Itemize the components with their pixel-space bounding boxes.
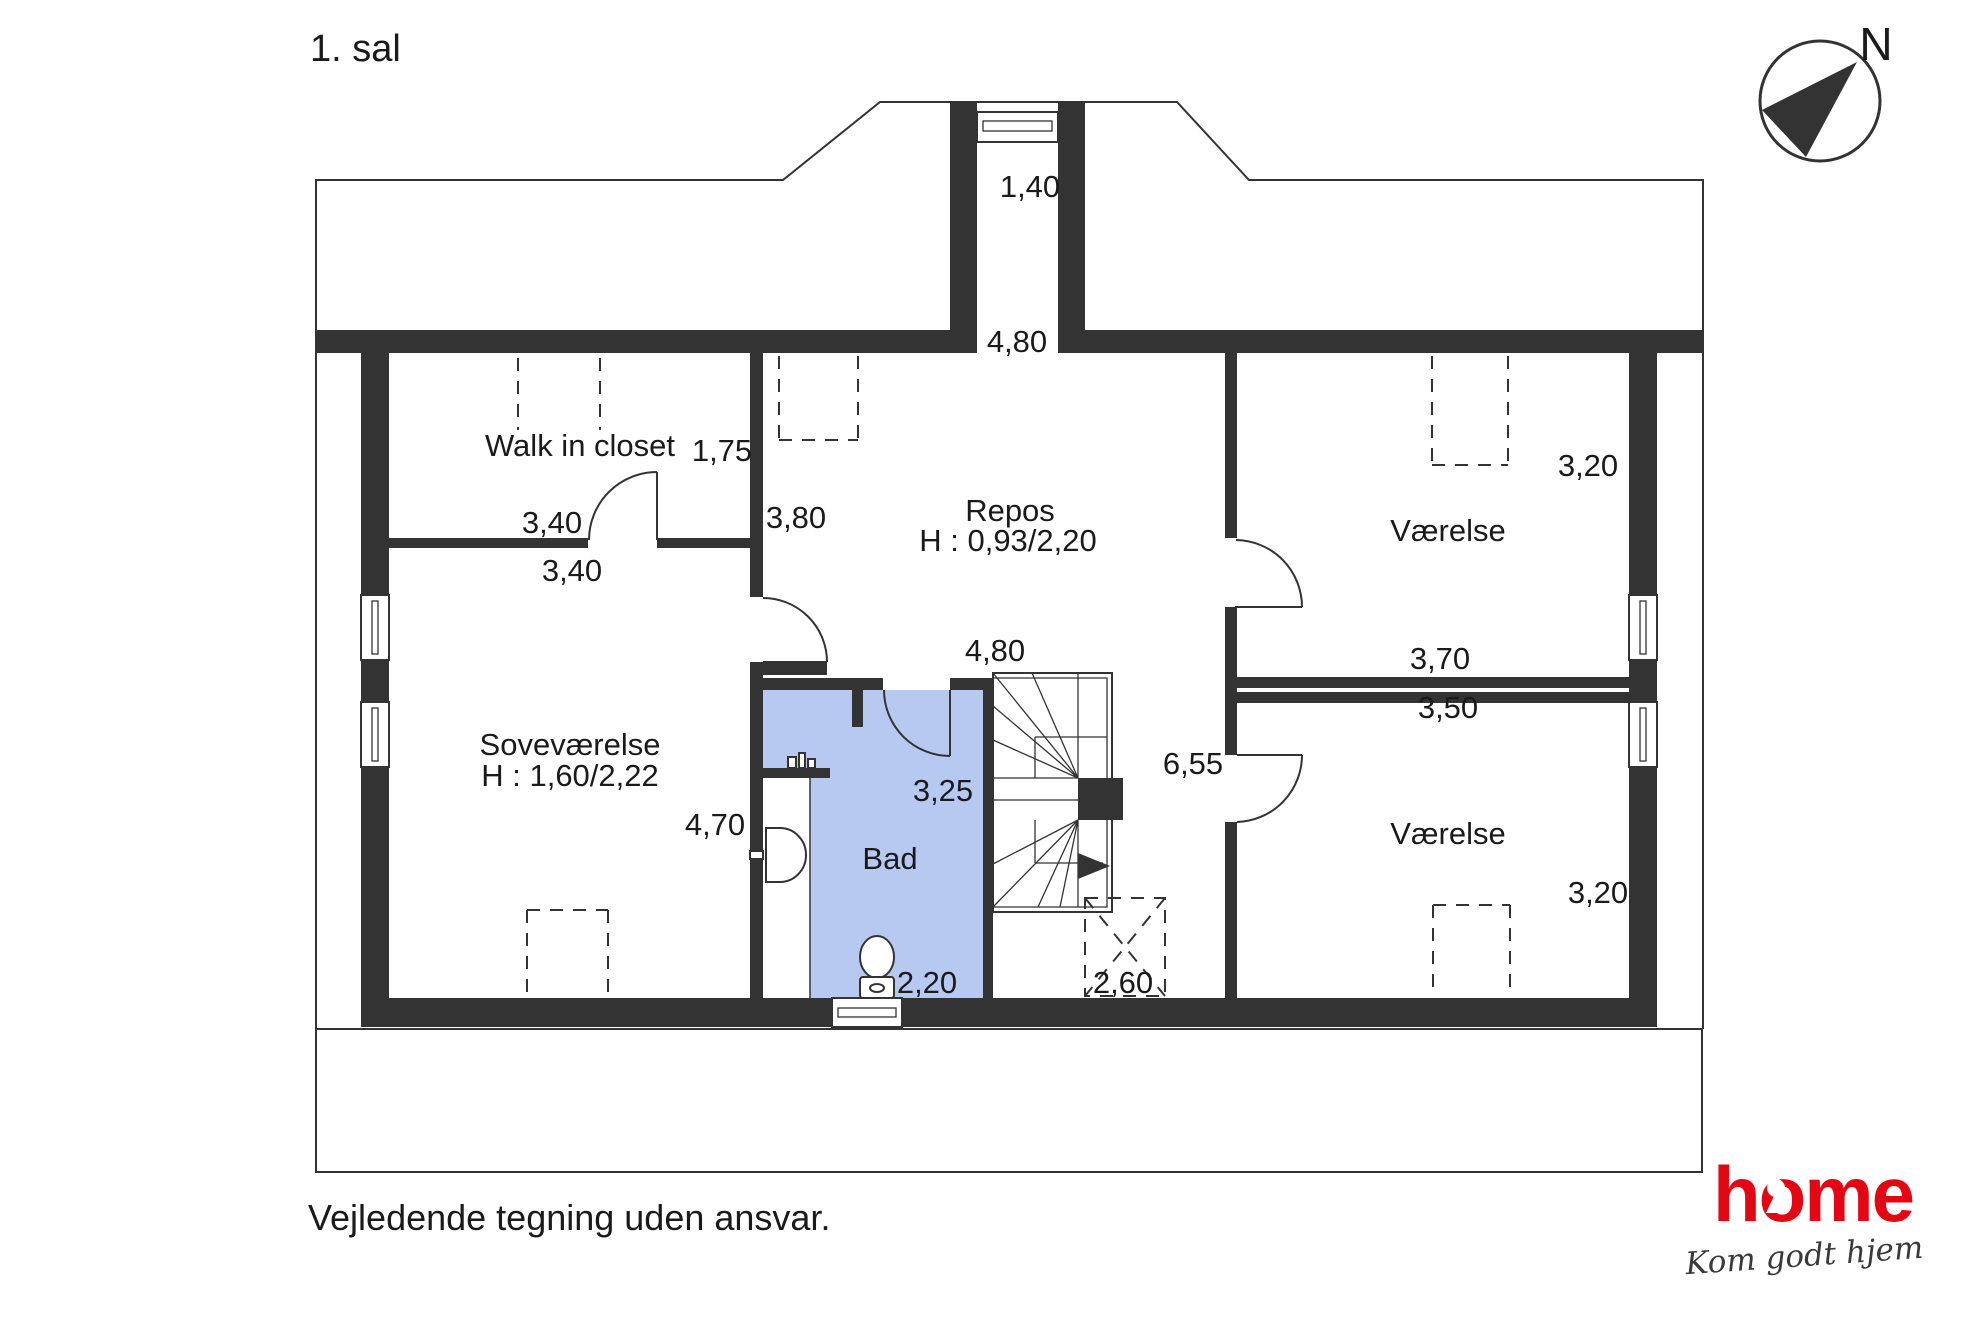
dim-vaerelse-bottom-width: 3,50 [1418,690,1478,725]
sove-dashed-box [527,910,608,996]
walls [316,102,1703,1027]
brand-logo: home Kom godt hjem [1683,1150,1924,1282]
wall-chimney-right [1058,102,1085,353]
dim-closet-depth: 1,75 [692,433,752,468]
dim-bad-width: 2,20 [897,965,957,1000]
repos-dashed-box [779,356,858,440]
wall-bad-stub [852,690,863,727]
bath-shelf [762,768,830,778]
room-label-walk-in-closet: Walk in closet [485,428,675,463]
disclaimer-text: Vejledende tegning uden ansvar. [308,1197,830,1238]
dim-vaerelse-bottom-height: 3,20 [1568,875,1628,910]
vaerelse-bottom-dashed-box [1433,905,1510,996]
dim-chimney-width: 1,40 [1000,169,1060,204]
room-label-bad: Bad [862,841,917,876]
stairs-icon [993,673,1123,912]
dim-repos-top-width: 4,80 [987,324,1047,359]
window-right-1 [1629,595,1657,660]
wall-exterior-right [1629,353,1657,998]
dim-corridor-height: 6,55 [1163,746,1223,781]
wall-mid-lower [750,662,763,998]
brand-name: home [1713,1150,1913,1238]
wall-mid-upper [750,353,763,597]
room-label-vaerelse-top: Værelse [1390,513,1505,548]
door-vaerelse-bottom [1237,755,1302,822]
door-corridor [763,598,827,662]
wall-right-rooms-lower [1225,822,1237,998]
dim-vaerelse-top-width: 3,70 [1410,641,1470,676]
room-height-sovevaerelse: H : 1,60/2,22 [481,758,659,793]
wall-top-band-left [316,330,972,353]
dim-sove-height: 4,70 [685,807,745,842]
wall-top-band-right [1058,330,1703,353]
floor-plan: 1. sal N [0,0,1984,1323]
stair-direction-arrow [1078,853,1110,879]
window-dormer [977,112,1058,142]
dim-bad-height: 3,25 [913,773,973,808]
dim-vaerelse-top-height: 3,20 [1558,448,1618,483]
dim-closet-width-top: 3,40 [522,505,582,540]
wall-exterior-left [361,353,389,998]
toilet-icon [860,936,894,998]
dim-repos-left-height: 3,80 [766,500,826,535]
door-vaerelse-top [1235,540,1302,607]
north-label: N [1859,18,1892,70]
wall-bottom [361,998,1657,1027]
compass-icon: N [1760,18,1893,161]
wall-corridor-bar [750,663,827,675]
room-label-sovevaerelse: Soveværelse [480,727,661,762]
wall-chimney-left [950,102,977,353]
window-left-2 [361,702,389,767]
wall-bad-right [983,678,993,998]
window-bath-bottom [832,998,902,1027]
room-label-vaerelse-bottom: Værelse [1390,816,1505,851]
wall-divider-upper [1235,677,1629,688]
page-title: 1. sal [310,28,401,70]
closet-dashed-lines [518,358,600,430]
dim-repos-mid-width: 4,80 [965,633,1025,668]
window-right-2 [1629,702,1657,767]
room-height-repos: H : 0,93/2,20 [919,523,1097,558]
dim-stair-void: 2,60 [1093,965,1153,1000]
door-closet [589,472,657,540]
vaerelse-top-dashed-box [1432,356,1508,465]
lower-roof-outline [316,1029,1702,1172]
wall-closet-bottom-right [657,538,763,548]
wall-bad-top-left [750,678,883,690]
window-left-1 [361,595,389,660]
wall-right-rooms-upper [1225,353,1237,538]
dim-closet-width-bottom: 3,40 [542,553,602,588]
stair-landing-block [1078,778,1123,820]
